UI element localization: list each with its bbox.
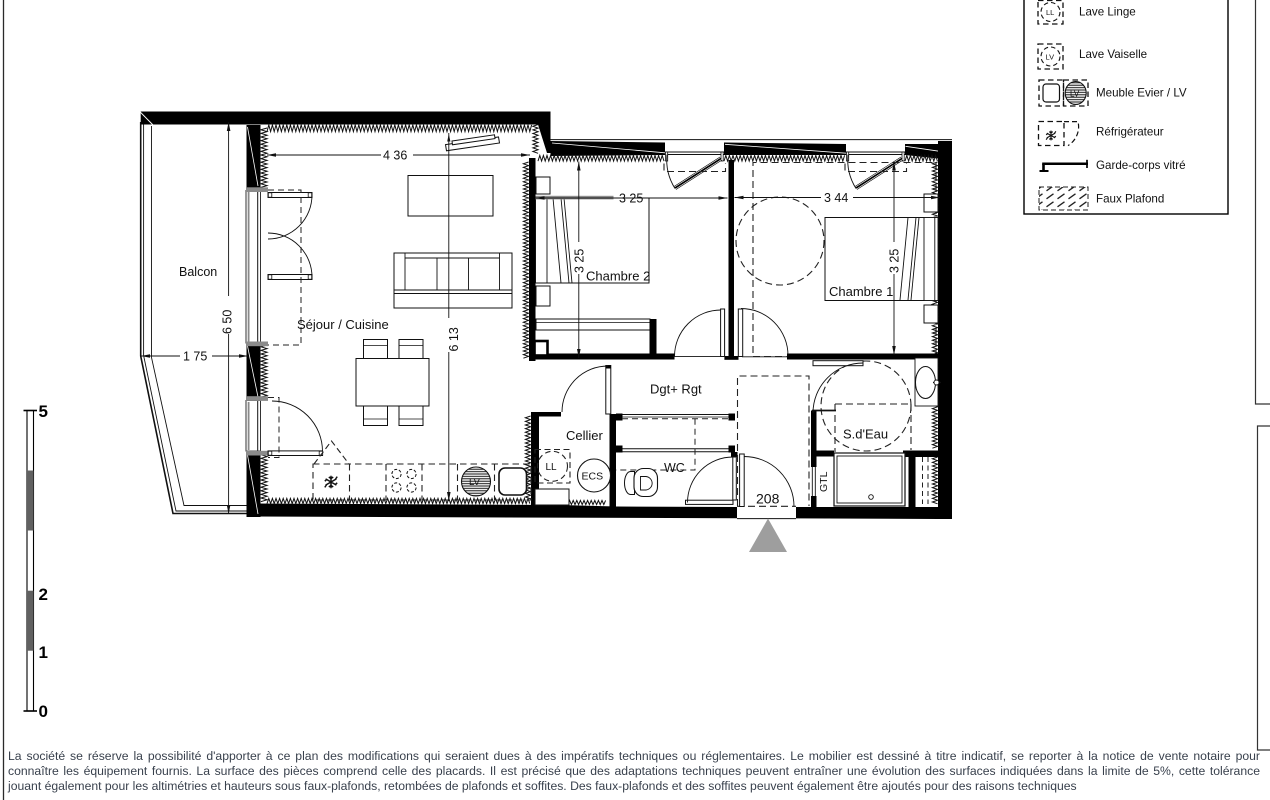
svg-text:S.d'Eau: S.d'Eau bbox=[843, 427, 888, 442]
svg-text:Dgt+ Rgt: Dgt+ Rgt bbox=[650, 382, 702, 397]
svg-text:1: 1 bbox=[39, 643, 48, 662]
svg-text:Faux Plafond: Faux Plafond bbox=[1096, 193, 1164, 206]
svg-text:Lave Vaiselle: Lave Vaiselle bbox=[1079, 48, 1147, 61]
svg-text:6 13: 6 13 bbox=[447, 327, 461, 351]
svg-text:Balcon: Balcon bbox=[179, 265, 217, 279]
svg-text:ECS: ECS bbox=[582, 471, 604, 483]
svg-text:Lave Linge: Lave Linge bbox=[1079, 6, 1136, 19]
svg-text:GTL: GTL bbox=[818, 471, 830, 492]
svg-text:3 44: 3 44 bbox=[824, 191, 848, 205]
svg-text:LV: LV bbox=[469, 477, 481, 488]
svg-text:3 25: 3 25 bbox=[573, 249, 587, 273]
svg-text:2: 2 bbox=[39, 585, 48, 604]
svg-text:3 25: 3 25 bbox=[619, 192, 643, 206]
svg-text:5: 5 bbox=[39, 402, 48, 421]
svg-text:208: 208 bbox=[756, 491, 780, 507]
svg-text:LV: LV bbox=[1046, 53, 1055, 62]
svg-text:4 36: 4 36 bbox=[383, 149, 407, 163]
svg-text:LL: LL bbox=[546, 462, 558, 473]
svg-text:Chambre 2: Chambre 2 bbox=[586, 269, 650, 284]
svg-text:Réfrigérateur: Réfrigérateur bbox=[1096, 126, 1164, 139]
svg-text:Garde-corps vitré: Garde-corps vitré bbox=[1096, 159, 1186, 172]
svg-text:Meuble Evier / LV: Meuble Evier / LV bbox=[1096, 87, 1187, 100]
svg-text:0: 0 bbox=[39, 702, 48, 721]
svg-text:LL: LL bbox=[1046, 8, 1054, 17]
svg-text:3 25: 3 25 bbox=[888, 249, 902, 273]
svg-text:1 75: 1 75 bbox=[183, 350, 207, 364]
svg-text:Séjour / Cuisine: Séjour / Cuisine bbox=[297, 317, 389, 332]
svg-text:6 50: 6 50 bbox=[221, 310, 235, 334]
svg-text:WC: WC bbox=[664, 461, 685, 475]
svg-text:LV: LV bbox=[1070, 90, 1080, 99]
svg-text:Chambre 1: Chambre 1 bbox=[829, 284, 893, 299]
svg-text:Cellier: Cellier bbox=[566, 428, 604, 443]
